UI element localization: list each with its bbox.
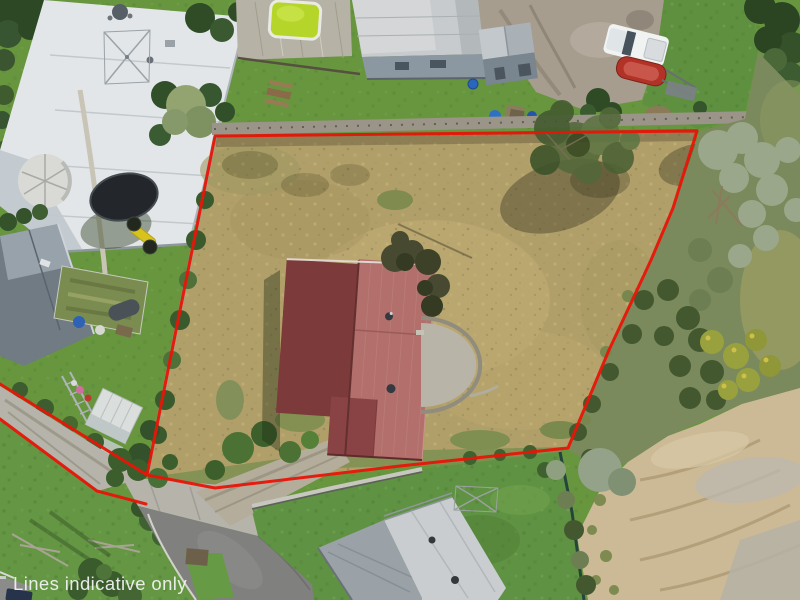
- aerial-photo-canvas: Lines indicative only: [0, 0, 800, 600]
- blue-barrel: [468, 79, 478, 89]
- dome-tent: [18, 154, 72, 208]
- swimming-pool: [269, 0, 321, 39]
- gray-building: [352, 0, 486, 79]
- edge-artifact: [0, 576, 6, 579]
- garden-shed: [479, 23, 538, 86]
- aerial-photo: Lines indicative only: [0, 0, 800, 600]
- disclaimer-text: Lines indicative only: [13, 573, 187, 594]
- blue-barrel: [73, 316, 85, 328]
- house-west-shadow: [262, 270, 280, 452]
- roof-vent: [147, 57, 154, 64]
